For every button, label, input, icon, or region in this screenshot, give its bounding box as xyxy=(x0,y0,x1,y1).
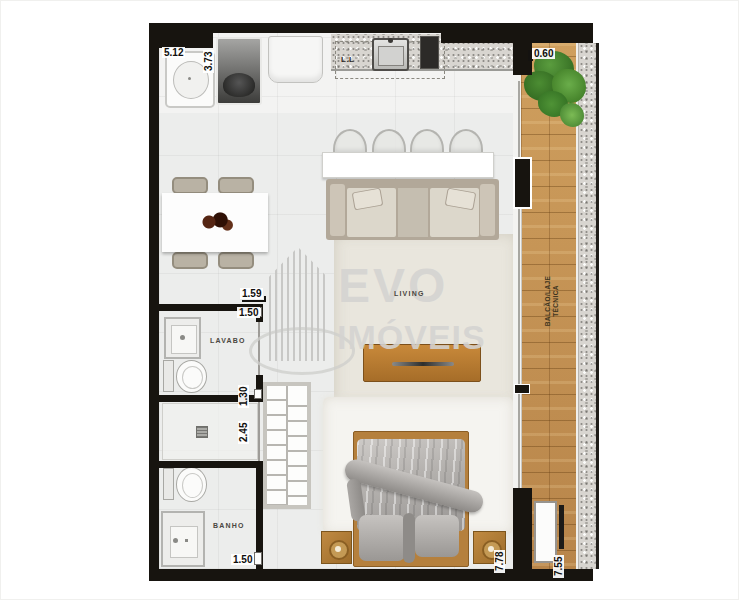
dim-shower-depth: 2.45 xyxy=(238,421,249,444)
closet-shelves-right xyxy=(288,392,307,505)
plant-leaf-5 xyxy=(560,103,584,127)
living-label: LIVING xyxy=(394,290,425,297)
dim-laundry-width: 5.12 xyxy=(162,47,185,58)
bed-pillow-roll xyxy=(403,513,415,563)
balcony-label-line2: TÉCNICA xyxy=(552,266,560,336)
wall-left-granite-segment xyxy=(149,101,159,167)
refrigerator xyxy=(268,36,323,83)
balcony-plant xyxy=(524,51,586,129)
nightstand-left-lamp-center xyxy=(335,546,341,552)
dim-balcony-width: 0.60 xyxy=(532,48,555,59)
closet xyxy=(263,382,311,509)
counter-label: L.L xyxy=(341,55,355,64)
banho-faucet xyxy=(173,538,178,543)
balcony-label: BALCÃO/LAJE TÉCNICA xyxy=(544,266,562,336)
sideboard-handle xyxy=(392,362,454,366)
wall-bottom xyxy=(149,569,593,581)
wall-left-lower xyxy=(149,165,159,581)
dim-lavabo-width: 1.50 xyxy=(237,307,260,318)
nightstand-left-lamp xyxy=(329,540,349,560)
pillar-balcony xyxy=(513,157,532,209)
kitchen-window-line xyxy=(518,81,520,157)
lavabo-toilet-seat xyxy=(182,366,203,389)
wall-mid-chunk xyxy=(514,384,530,394)
wall-top-right-block xyxy=(441,23,593,43)
banho-toilet-bowl xyxy=(176,467,207,502)
banho-faucet-handle xyxy=(185,539,188,542)
banho-toilet-tank xyxy=(163,468,174,500)
dining-chair-bottom-left xyxy=(172,252,208,269)
partition-shower-right xyxy=(258,402,260,461)
dining-chair-top-left xyxy=(172,177,208,194)
kitchen-sink-basin xyxy=(378,46,404,66)
wall-shower-bottom xyxy=(159,461,258,468)
lavabo-sink xyxy=(164,317,201,359)
door-marker-shower xyxy=(254,389,262,399)
wall-bedroom-right xyxy=(513,488,532,569)
sofa-armrest-right xyxy=(480,184,495,236)
watermark-line1: EVO xyxy=(338,261,448,311)
banho-sink xyxy=(161,511,205,567)
watermark-line2: IMÓVEIS xyxy=(337,319,486,355)
sliding-door-track-1 xyxy=(518,209,520,384)
dim-banho-width: 1.50 xyxy=(231,554,254,565)
lavabo-toilet-tank xyxy=(163,360,174,392)
nightstand-left xyxy=(321,531,352,564)
tick-balcony-width xyxy=(528,50,533,61)
dining-chair-top-right xyxy=(218,177,254,194)
banho-toilet-seat xyxy=(182,473,203,498)
sliding-door-track-3 xyxy=(521,209,522,488)
dim-lavabo-depth: 1.30 xyxy=(238,385,249,408)
washing-machine xyxy=(216,37,262,105)
dim-balcony-depth: 7.55 xyxy=(553,555,564,578)
balcony-label-line1: BALCÃO/LAJE xyxy=(544,266,552,336)
sofa-seat-center xyxy=(398,188,428,237)
bed-pillow-right xyxy=(415,515,459,557)
sofa-armrest-left xyxy=(330,184,345,236)
bar-counter xyxy=(322,152,494,178)
tick-dining-width xyxy=(242,296,266,302)
balcony-ac-dark-bar xyxy=(559,505,564,549)
table-centerpiece xyxy=(197,209,237,235)
closet-shelves-left xyxy=(267,386,286,505)
sofa xyxy=(326,179,499,240)
dining-chair-bottom-right xyxy=(218,252,254,269)
lavabo-label: LAVABO xyxy=(210,337,246,344)
floor-plan-canvas: EVO IMÓVEIS LIVING LAVABO BANHO L.L BALC… xyxy=(0,0,739,600)
laundry-sink-drain xyxy=(188,77,191,80)
kitchen-faucet xyxy=(388,38,393,43)
lavabo-faucet xyxy=(180,335,185,340)
banho-label: BANHO xyxy=(213,522,245,529)
bed-pillow-left xyxy=(359,515,405,561)
lavabo-toilet-bowl xyxy=(176,360,207,393)
dim-unit-depth: 7.78 xyxy=(494,550,505,573)
sliding-door-track-2 xyxy=(518,394,520,488)
wall-left-upper xyxy=(149,23,159,103)
dim-kitchen-side: 3.73 xyxy=(203,50,214,73)
shower-drain xyxy=(196,426,208,438)
cooktop xyxy=(420,36,439,69)
door-marker-banho xyxy=(254,552,262,565)
kitchen-sink xyxy=(372,38,409,71)
washing-machine-drum xyxy=(223,73,255,97)
